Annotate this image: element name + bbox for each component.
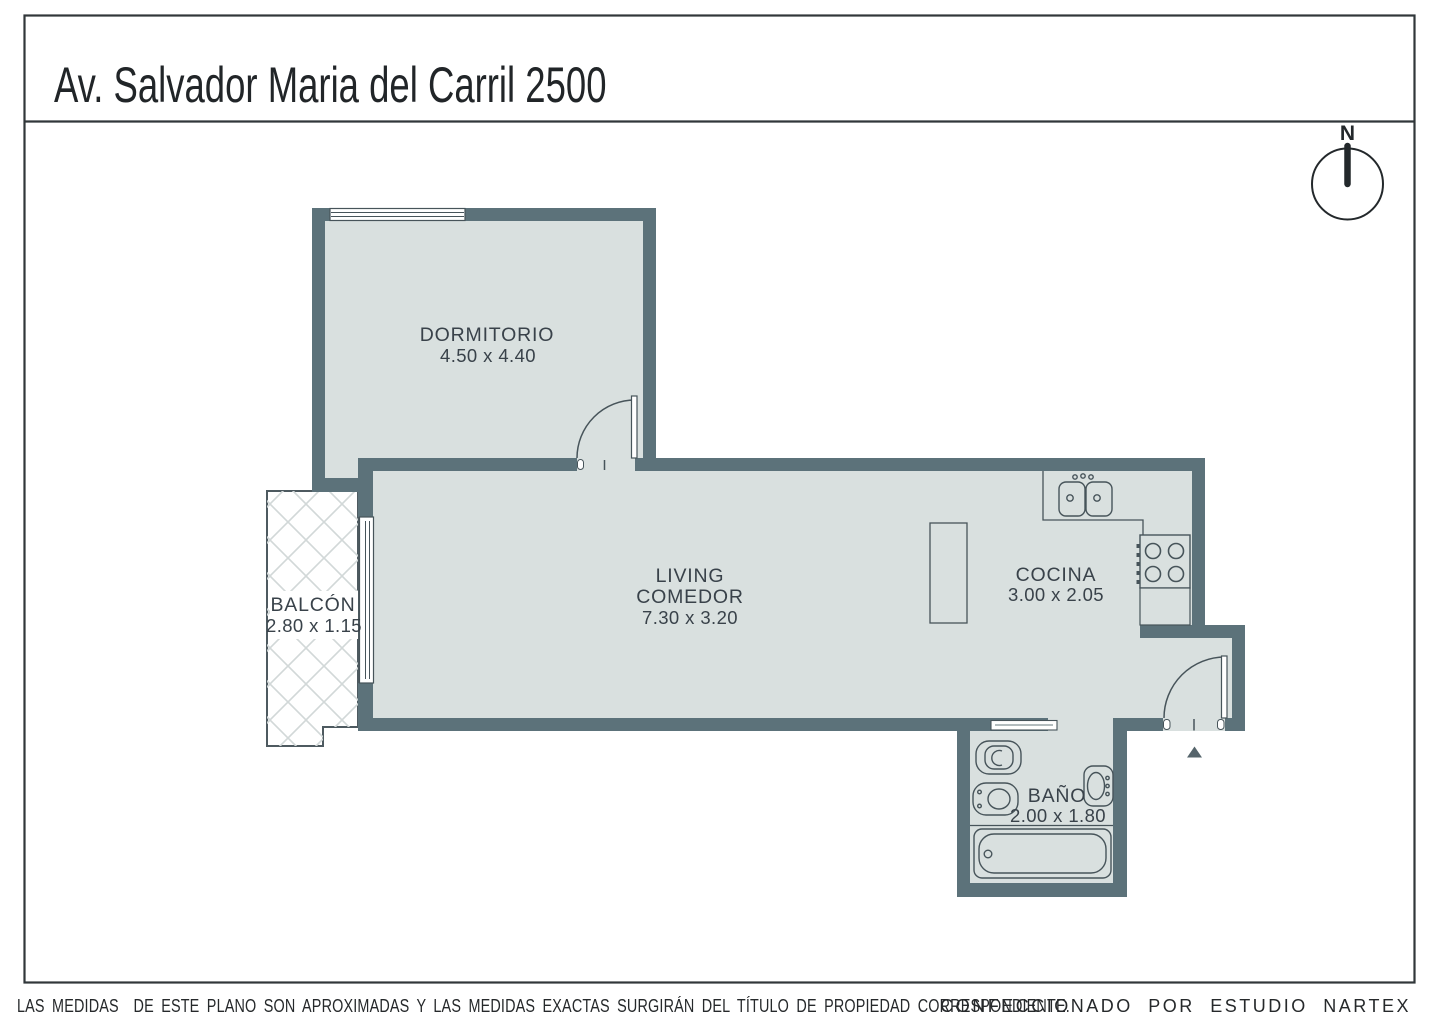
room-dims-bano: 2.00 x 1.80 [1010,805,1106,826]
bedroom-window-icon [330,209,465,221]
room-dims-living: 7.30 x 3.20 [642,607,738,628]
kitchen-counter-lower [1140,588,1190,625]
room-label-living-line1: LIVING [656,565,725,587]
bathroom-sink-icon [1084,766,1113,806]
stove-icon [1137,535,1191,588]
room-label-balcon: BALCÓN [271,593,356,616]
bedroom-door-opening [577,458,635,471]
bathroom-sliding-door-icon [991,721,1057,731]
floor-plan-drawing: N DORMITORIO 4.50 x 4.40 LIVING COMEDOR … [0,0,1440,1018]
room-dims-cocina: 3.00 x 2.05 [1008,584,1104,605]
bathroom-door-opening [1048,718,1113,731]
footer-disclaimer: LAS MEDIDAS DE ESTE PLANO SON APROXIMADA… [17,997,1070,1015]
footer-credit: CONFECCIONADO POR ESTUDIO NARTEX [940,997,1411,1015]
room-label-living-line2: COMEDOR [636,586,743,608]
room-label-dormitorio: DORMITORIO [420,324,554,346]
compass: N [1312,122,1383,220]
room-dims-dormitorio: 4.50 x 4.40 [440,345,536,366]
floor-plan-page: { "title": "Av. Salvador Maria del Carri… [0,0,1440,1018]
room-dims-balcon: 2.80 x 1.15 [266,615,362,636]
room-label-cocina: COCINA [1016,564,1097,586]
entrance-marker-triangle [1187,747,1202,758]
balcony-sliding-door-icon [360,517,374,683]
entry-floor [1140,638,1232,718]
room-label-bano: BAÑO [1028,783,1086,807]
compass-north-label: N [1340,122,1355,145]
kitchen-island [930,523,967,623]
